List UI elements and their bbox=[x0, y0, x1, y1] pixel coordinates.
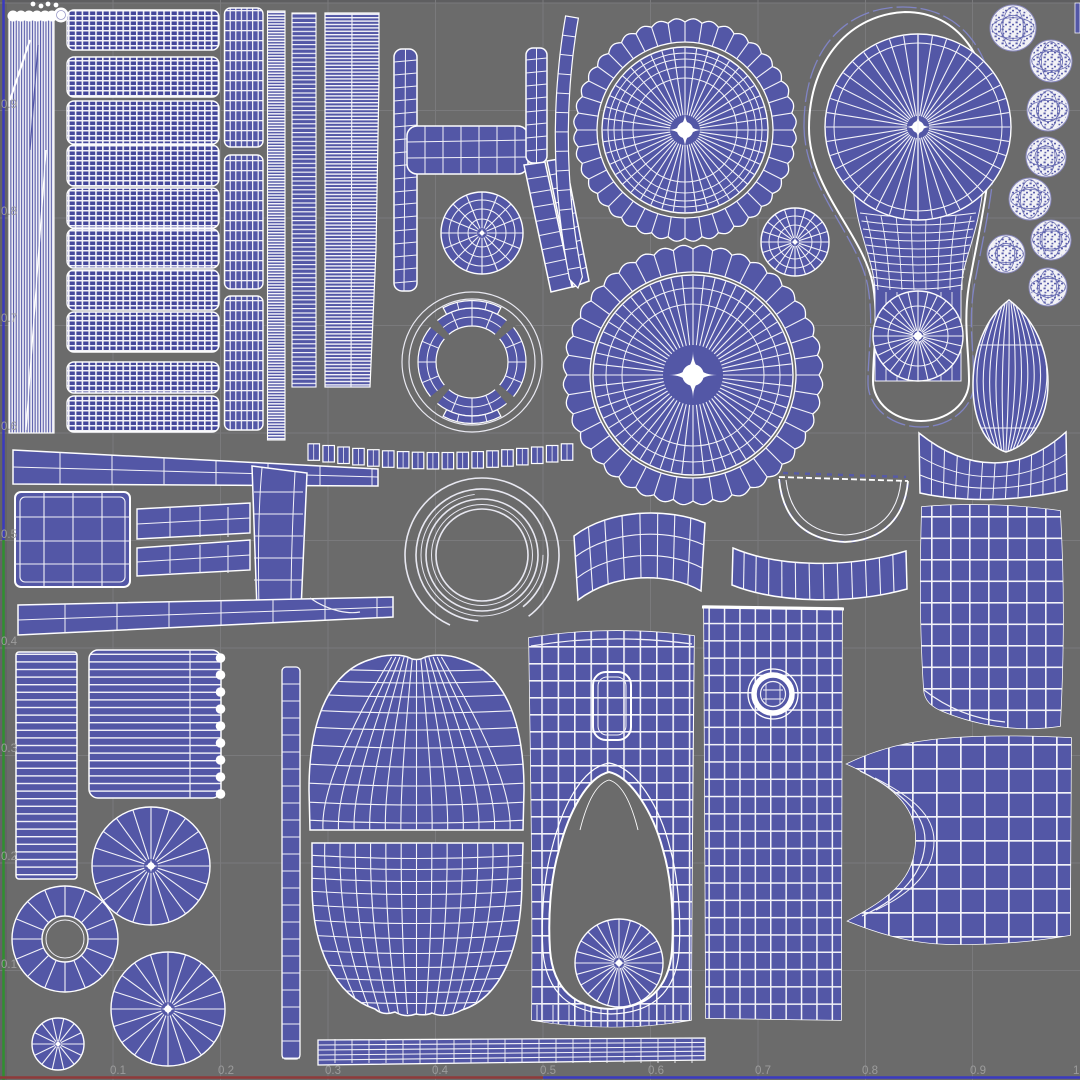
svg-text:0.9: 0.9 bbox=[970, 1065, 986, 1077]
svg-text:0.6: 0.6 bbox=[1, 421, 17, 433]
svg-text:0.7: 0.7 bbox=[1, 313, 17, 325]
svg-text:1: 1 bbox=[1073, 1065, 1079, 1077]
svg-text:0.7: 0.7 bbox=[755, 1065, 771, 1077]
svg-text:0.5: 0.5 bbox=[540, 1065, 556, 1077]
svg-text:0.3: 0.3 bbox=[325, 1065, 341, 1077]
svg-text:0.4: 0.4 bbox=[1, 636, 18, 648]
svg-text:0.2: 0.2 bbox=[1, 851, 17, 863]
svg-text:0.5: 0.5 bbox=[1, 529, 17, 541]
svg-text:0.8: 0.8 bbox=[1, 206, 17, 218]
svg-text:0.9: 0.9 bbox=[1, 99, 17, 111]
svg-text:0.1: 0.1 bbox=[110, 1065, 126, 1077]
svg-text:0.3: 0.3 bbox=[1, 743, 17, 755]
svg-text:0.6: 0.6 bbox=[648, 1065, 664, 1077]
svg-text:0.2: 0.2 bbox=[218, 1065, 234, 1077]
svg-text:0.8: 0.8 bbox=[862, 1065, 878, 1077]
svg-text:0.4: 0.4 bbox=[432, 1065, 449, 1077]
svg-text:0.1: 0.1 bbox=[1, 959, 17, 971]
